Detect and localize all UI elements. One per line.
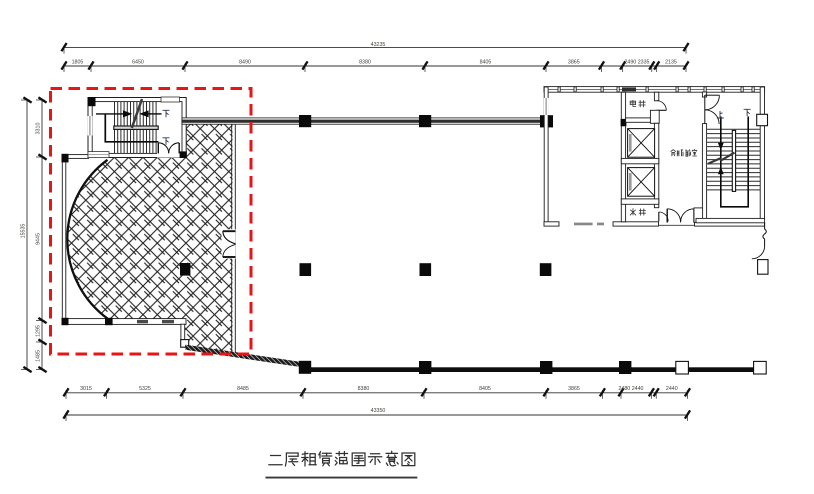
- svg-text:3865: 3865: [568, 59, 580, 65]
- svg-text:43350: 43350: [371, 408, 386, 414]
- svg-text:3015: 3015: [80, 386, 92, 392]
- svg-text:1485: 1485: [36, 350, 42, 362]
- svg-text:8380: 8380: [358, 386, 370, 392]
- svg-text:8380: 8380: [359, 59, 371, 65]
- svg-text:43235: 43235: [371, 42, 386, 48]
- svg-text:1805: 1805: [72, 59, 84, 65]
- svg-text:2135: 2135: [665, 59, 677, 65]
- svg-text:6450: 6450: [132, 59, 144, 65]
- svg-text:9445: 9445: [36, 233, 42, 245]
- svg-text:8485: 8485: [237, 386, 249, 392]
- svg-text:3865: 3865: [568, 386, 580, 392]
- svg-text:15535: 15535: [21, 224, 27, 239]
- svg-text:8405: 8405: [479, 386, 491, 392]
- svg-text:2440: 2440: [666, 386, 678, 392]
- svg-text:1295: 1295: [36, 325, 42, 337]
- svg-text:2480 2440: 2480 2440: [618, 386, 643, 392]
- svg-text:5325: 5325: [139, 386, 151, 392]
- svg-text:8405: 8405: [480, 59, 492, 65]
- svg-text:8490: 8490: [239, 59, 251, 65]
- svg-text:2490 2335: 2490 2335: [624, 59, 649, 65]
- svg-text:3310: 3310: [36, 123, 42, 135]
